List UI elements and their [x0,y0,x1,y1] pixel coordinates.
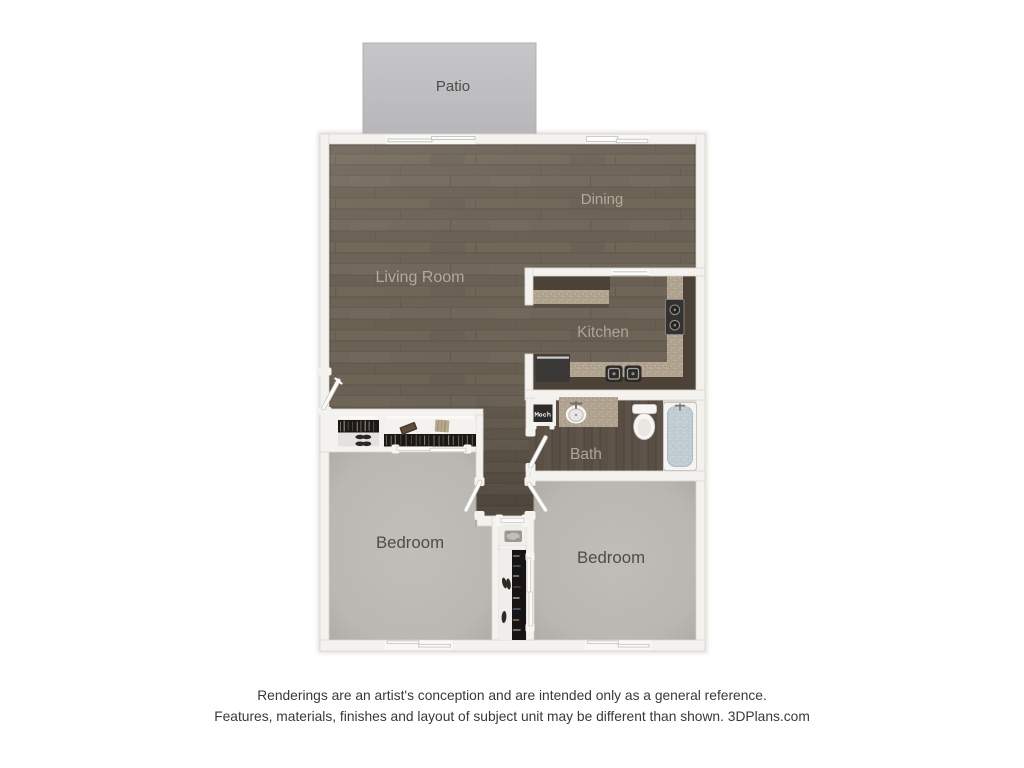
svg-text:Kitchen: Kitchen [577,324,629,341]
svg-text:Renderings are an artist's con: Renderings are an artist's conception an… [257,688,767,703]
svg-text:Bedroom: Bedroom [376,533,444,552]
svg-text:Patio: Patio [436,78,470,95]
svg-text:Living Room: Living Room [376,269,465,286]
svg-text:Features, materials, finishes: Features, materials, finishes and layout… [214,709,810,724]
svg-text:Bath: Bath [570,446,602,463]
svg-text:Dining: Dining [581,191,624,208]
svg-text:Bedroom: Bedroom [577,548,645,567]
